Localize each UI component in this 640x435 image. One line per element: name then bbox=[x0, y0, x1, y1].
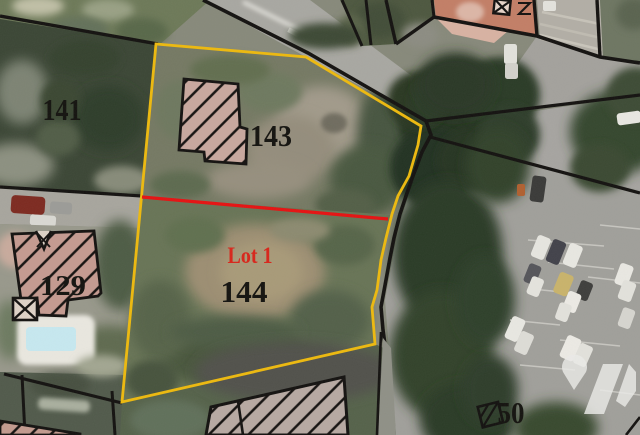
svg-text:141: 141 bbox=[43, 92, 82, 127]
svg-text:50: 50 bbox=[498, 395, 525, 430]
svg-text:Lot 1: Lot 1 bbox=[228, 243, 273, 268]
svg-text:144: 144 bbox=[221, 274, 268, 309]
svg-text:129: 129 bbox=[40, 270, 86, 302]
svg-text:143: 143 bbox=[250, 118, 292, 153]
